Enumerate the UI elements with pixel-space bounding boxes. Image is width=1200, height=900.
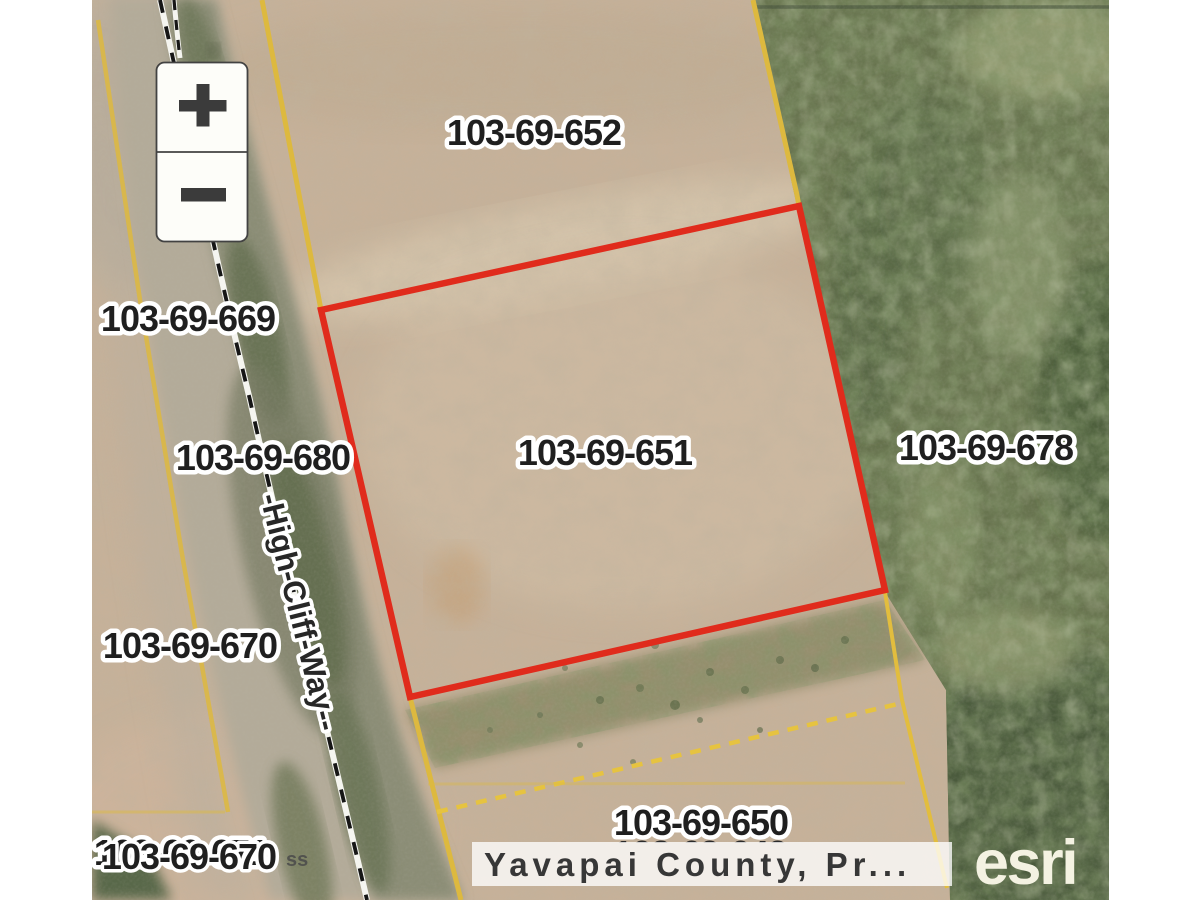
svg-text:ss: ss xyxy=(286,849,308,871)
svg-text:103-69-670: 103-69-670 xyxy=(102,836,276,877)
svg-text:103-69-678: 103-69-678 xyxy=(899,427,1073,468)
svg-text:103-69-669: 103-69-669 xyxy=(101,298,275,339)
svg-text:Yavapai County, Pr...: Yavapai County, Pr... xyxy=(484,846,911,883)
svg-text:103-69-652: 103-69-652 xyxy=(447,112,621,153)
svg-text:103-69-670: 103-69-670 xyxy=(103,625,277,666)
svg-text:103-69-680: 103-69-680 xyxy=(176,437,350,478)
svg-text:103-69-651: 103-69-651 xyxy=(518,432,693,473)
svg-text:esri: esri xyxy=(974,828,1076,898)
